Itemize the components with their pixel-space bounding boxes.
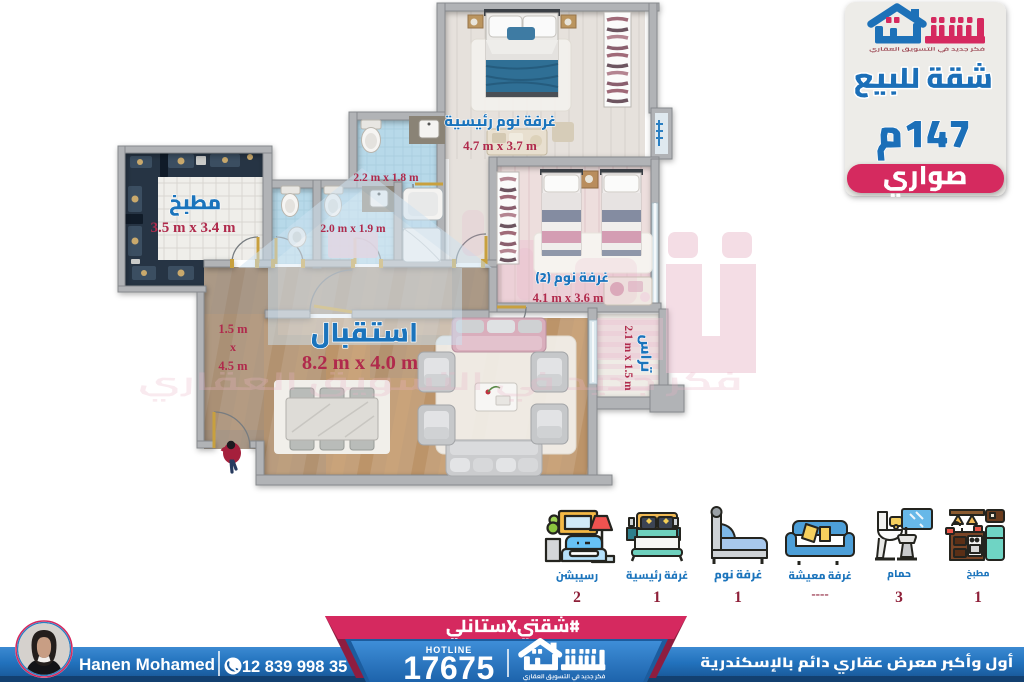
svg-text:3: 3 (895, 589, 903, 606)
svg-text:4.7 m x 3.7 m: 4.7 m x 3.7 m (463, 138, 537, 153)
svg-text:2.2 m x 1.8 m: 2.2 m x 1.8 m (353, 172, 419, 184)
svg-text:2.0 m x 1.9 m: 2.0 m x 1.9 m (320, 223, 386, 235)
svg-text:1: 1 (653, 589, 661, 606)
svg-text:1.5 m: 1.5 m (218, 322, 248, 336)
svg-text:----: ---- (811, 586, 828, 601)
svg-text:1: 1 (734, 589, 742, 606)
svg-text:8.2 m x 4.0 m: 8.2 m x 4.0 m (302, 352, 418, 374)
svg-text:Hanen Mohamed: Hanen Mohamed (79, 655, 215, 674)
svg-text:3.5 m x 3.4 m: 3.5 m x 3.4 m (151, 220, 236, 236)
svg-text:x: x (230, 340, 236, 354)
svg-text:4.1 m x 3.6 m: 4.1 m x 3.6 m (533, 291, 604, 305)
svg-text:012 839 998 35: 012 839 998 35 (233, 658, 348, 676)
svg-text:2: 2 (573, 589, 581, 606)
svg-text:2.1 m x 1.5 m: 2.1 m x 1.5 m (622, 325, 634, 391)
svg-text:17675: 17675 (403, 650, 494, 682)
svg-text:4.5 m: 4.5 m (218, 359, 248, 373)
svg-text:1: 1 (974, 589, 982, 606)
